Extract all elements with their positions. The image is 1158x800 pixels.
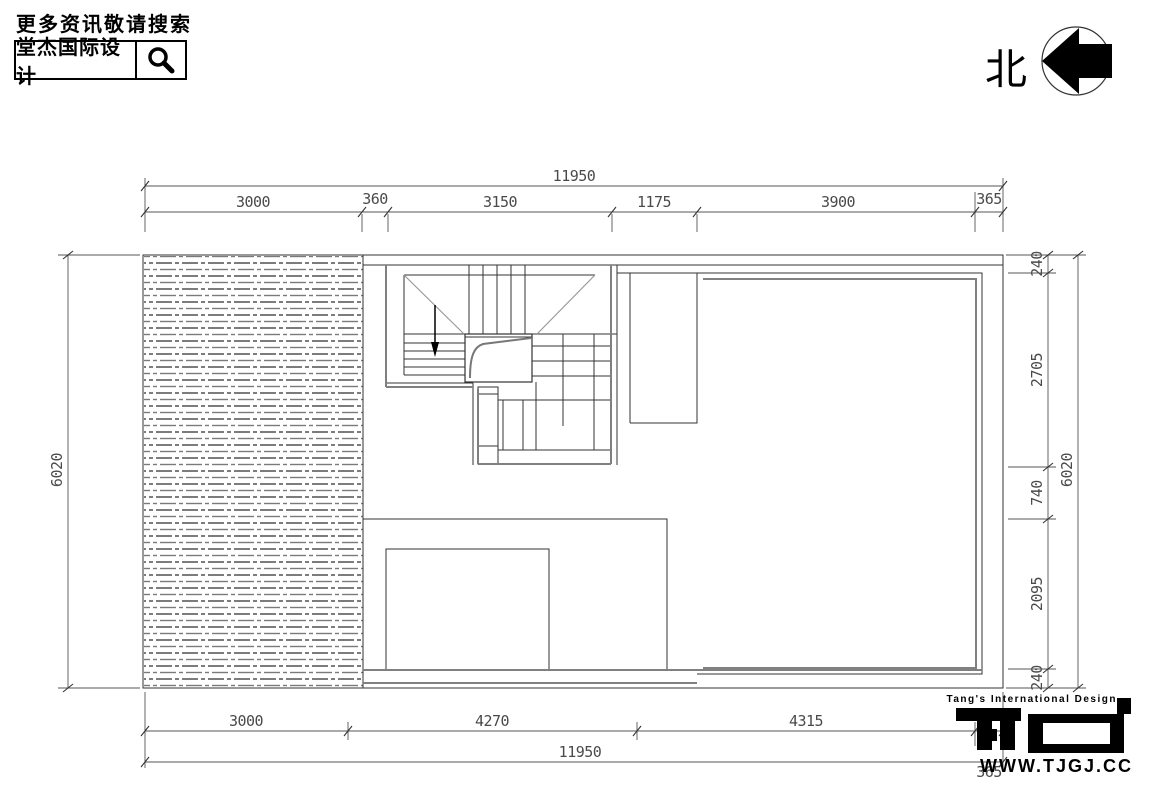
dim-top-6: 365 [976,190,1002,208]
stair-landing [465,334,532,382]
dim-right-3: 740 [1028,480,1046,506]
tjd-logo: Tang's International Design WWW.TJGJ.CC [935,694,1135,784]
floor-plan-page: 更多资讯敬请搜索 堂杰国际设计 北 [0,0,1158,800]
logo-letter-d-inner [1043,723,1110,744]
dim-top-total: 11950 [553,167,596,185]
hatch-terrace [144,256,363,687]
dim-left-total: 6020 [48,452,66,487]
dim-top-5: 3900 [821,193,856,211]
dim-top-3: 3150 [483,193,518,211]
dim-top-2: 360 [362,190,388,208]
stair-diagonals [404,275,595,334]
logo-square-icon [1117,698,1131,714]
dim-top-1: 3000 [236,193,271,211]
dim-bottom-2: 4270 [475,712,510,730]
dim-right-1: 240 [1028,251,1046,277]
dim-bottom-total: 11950 [559,743,602,761]
dim-right-total: 6020 [1058,452,1076,487]
logo-letter-j-dot [987,729,997,741]
dim-right-2: 2705 [1028,353,1046,387]
logo-website: WWW.TJGJ.CC [935,756,1133,777]
dim-bottom-3: 4315 [789,712,823,730]
dim-bottom-1: 3000 [229,712,264,730]
dim-top-4: 1175 [637,193,671,211]
dim-right-5: 240 [1028,665,1046,691]
dim-right-4: 2095 [1028,577,1046,611]
stair-down-arrow-icon [431,305,439,357]
floor-plan-drawing: 11950 3000 360 3150 1175 3900 365 6020 2… [0,0,1158,800]
walls-thick [363,265,982,683]
logo-tagline: Tang's International Design [947,694,1118,705]
logo-letter-d [1028,714,1124,753]
logo-letter-j [1000,708,1015,750]
